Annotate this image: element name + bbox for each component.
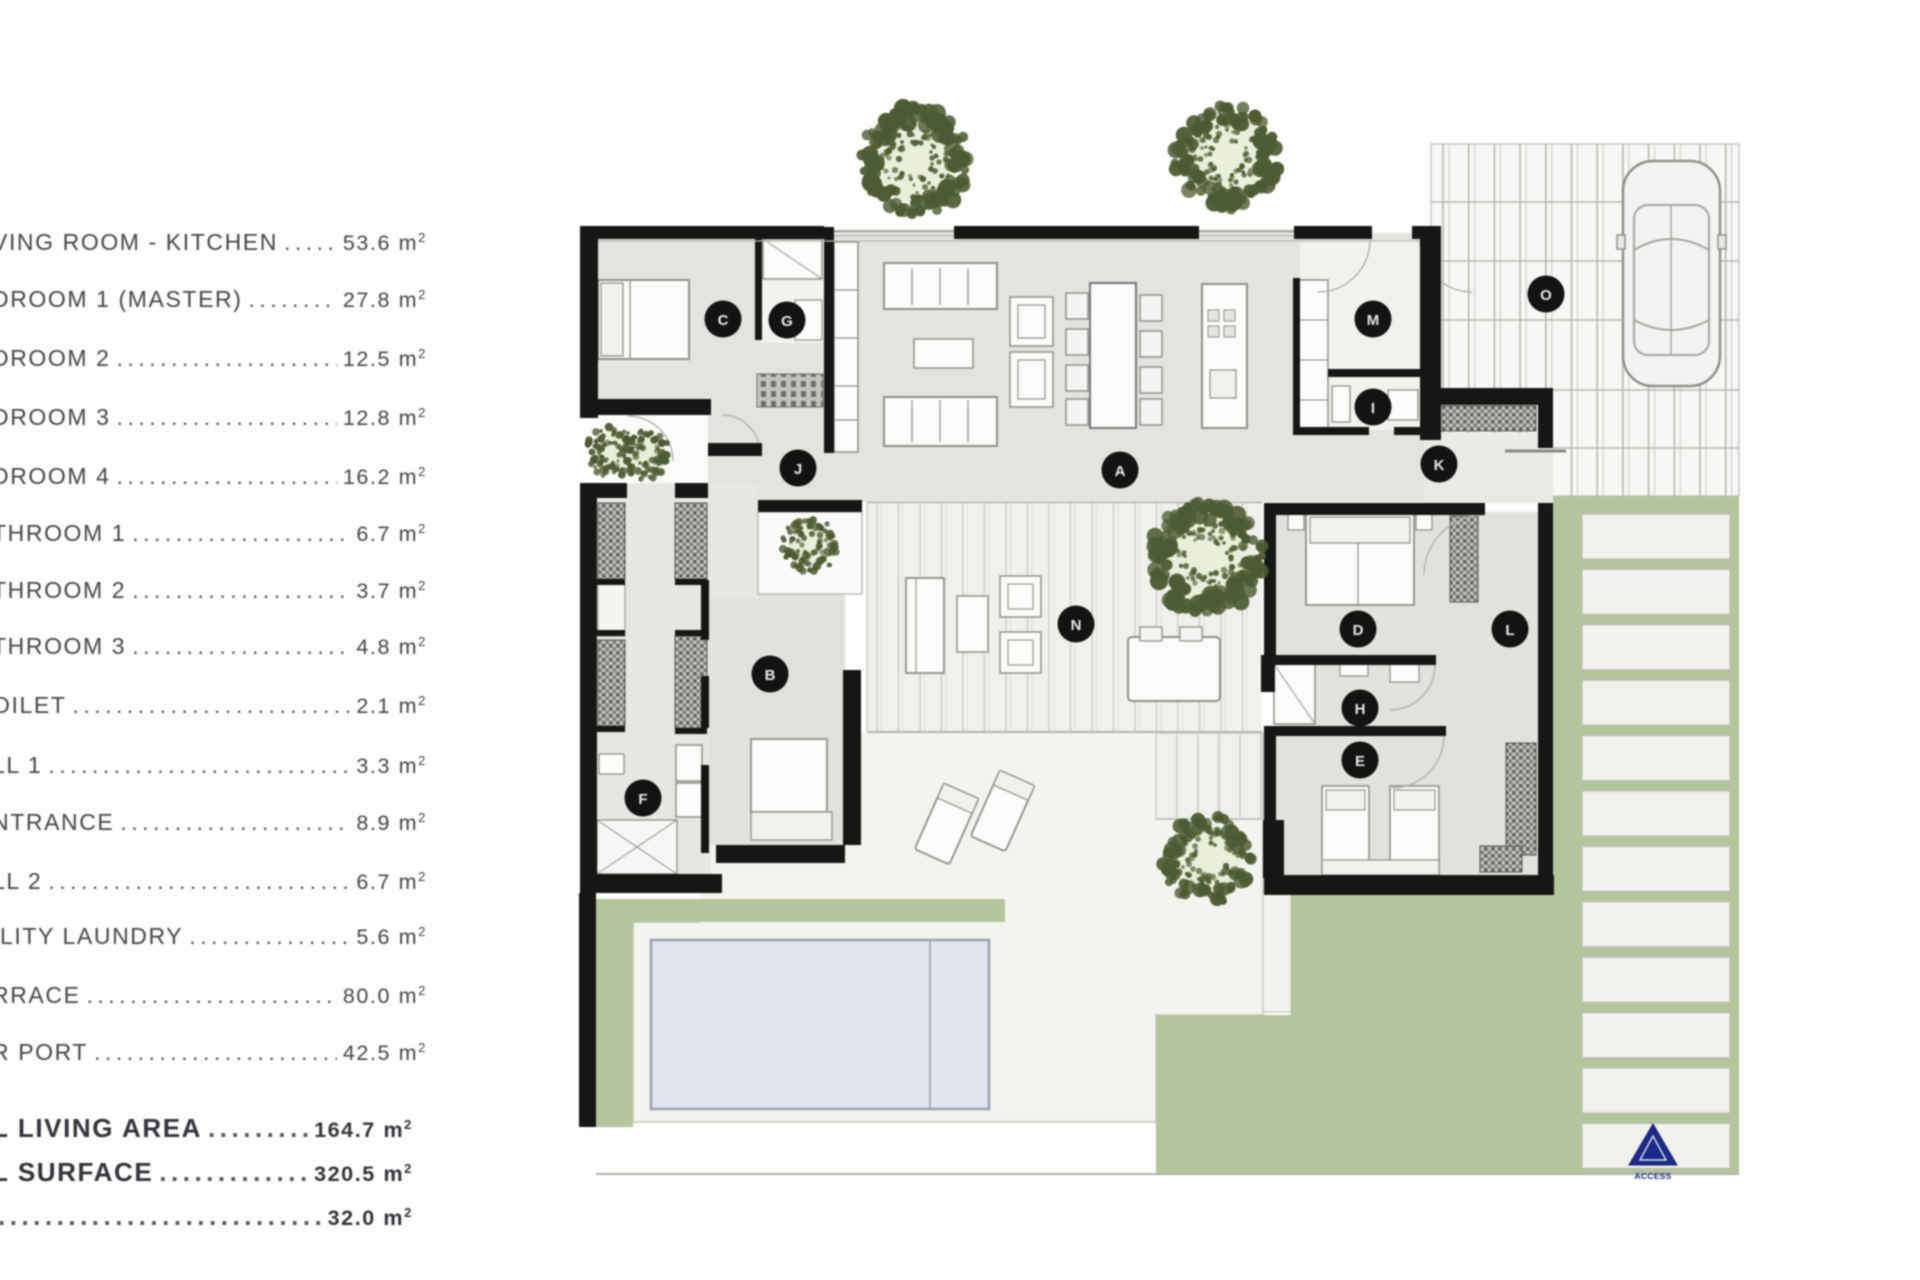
svg-text:M: M — [1367, 312, 1380, 329]
svg-text:N: N — [1071, 617, 1082, 634]
svg-text:O: O — [1540, 287, 1552, 304]
svg-text:I: I — [1371, 400, 1375, 417]
svg-text:K: K — [1434, 457, 1445, 474]
svg-text:ACCESS: ACCESS — [1634, 1171, 1671, 1181]
svg-text:B: B — [765, 667, 776, 684]
svg-text:F: F — [638, 791, 647, 808]
svg-text:L: L — [1505, 622, 1514, 639]
svg-text:G: G — [781, 313, 793, 330]
svg-text:C: C — [718, 312, 729, 329]
svg-text:H: H — [1355, 701, 1366, 718]
svg-text:E: E — [1355, 753, 1365, 770]
svg-text:D: D — [1353, 622, 1364, 639]
svg-text:A: A — [1115, 463, 1126, 480]
svg-text:J: J — [794, 461, 802, 478]
